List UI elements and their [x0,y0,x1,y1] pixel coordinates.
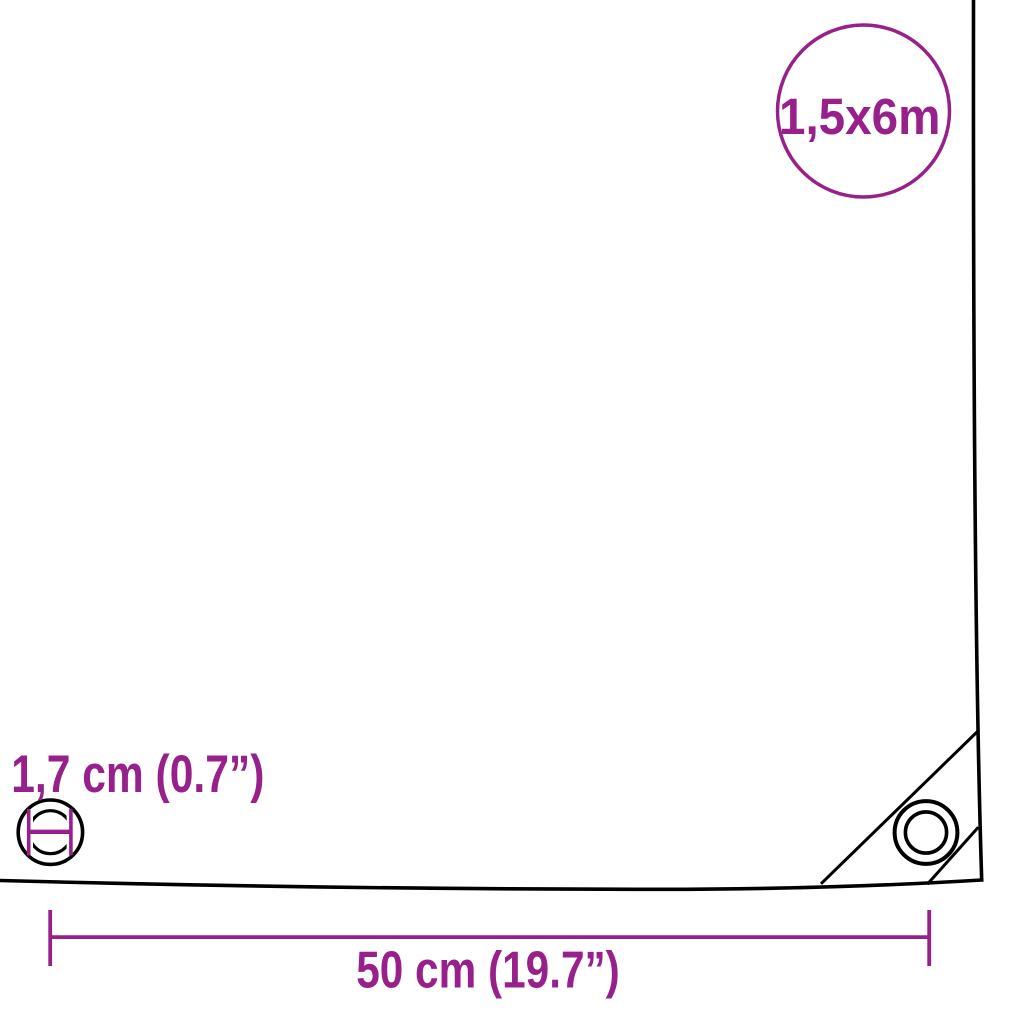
svg-text:1,7 cm (0.7”): 1,7 cm (0.7”) [11,745,264,804]
svg-text:1,5x6m: 1,5x6m [779,88,940,145]
svg-text:50 cm (19.7”): 50 cm (19.7”) [356,942,620,1000]
